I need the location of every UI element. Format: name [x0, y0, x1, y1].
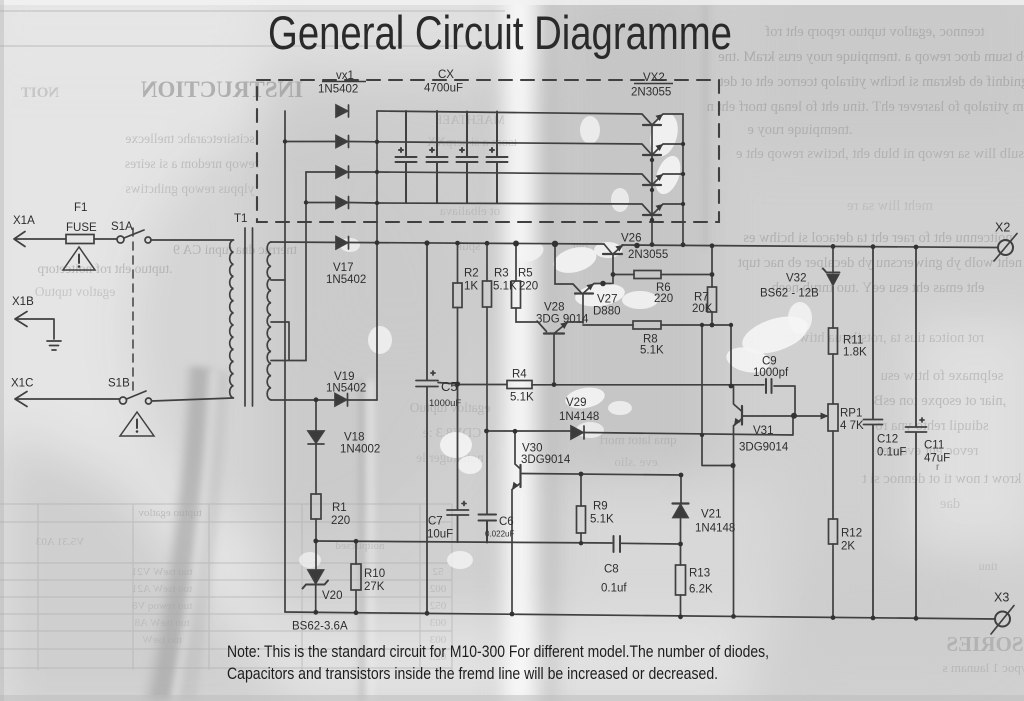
svg-text:5.1K: 5.1K: [493, 281, 517, 293]
svg-text:vx1: vx1: [336, 70, 354, 82]
svg-text:3DG9014: 3DG9014: [521, 454, 571, 466]
svg-text:BS62-3.6A: BS62-3.6A: [292, 621, 348, 633]
svg-text:1000pf: 1000pf: [753, 367, 789, 379]
svg-text:F1: F1: [74, 202, 87, 214]
svg-text:X1B: X1B: [12, 296, 34, 308]
svg-text:General Circuit Diagramme: General Circuit Diagramme: [268, 7, 732, 60]
svg-text:1N4002: 1N4002: [340, 444, 380, 456]
svg-text:V21: V21: [701, 509, 721, 521]
svg-text:C12: C12: [877, 434, 898, 446]
svg-text:V28: V28: [544, 302, 564, 314]
svg-text:R3: R3: [494, 268, 509, 280]
svg-text:tuo tseW: tuo tseW: [142, 634, 182, 646]
svg-text:ot elbaliava: ot elbaliava: [440, 203, 501, 218]
svg-text:2N3055: 2N3055: [631, 87, 671, 99]
svg-text:tinu: tinu: [979, 559, 998, 573]
svg-text:selpmaxe fo htiw esu: selpmaxe fo htiw esu: [881, 368, 1004, 384]
svg-text:4700uF: 4700uF: [424, 83, 463, 95]
svg-text:R9: R9: [593, 501, 608, 513]
svg-text:C8: C8: [604, 564, 619, 576]
svg-text:220: 220: [654, 293, 673, 305]
svg-text:scitsiretcarahc tnellecxe: scitsiretcarahc tnellecxe: [125, 131, 254, 146]
svg-text:052: 052: [430, 600, 447, 612]
svg-text:3DG 9014: 3DG 9014: [536, 314, 589, 326]
svg-text:5.1K: 5.1K: [640, 345, 664, 357]
svg-text:R13: R13: [689, 568, 710, 580]
svg-text:0.1uf: 0.1uf: [601, 583, 627, 595]
svg-text:D880: D880: [593, 306, 621, 318]
svg-text:1K: 1K: [464, 281, 478, 293]
svg-text:.tuptuo eht rof noitcetorp: .tuptuo eht rof noitcetorp: [37, 261, 172, 276]
svg-text:yam ytiralop fo lasrever ehT .: yam ytiralop fo lasrever ehT .tinu eht f…: [706, 99, 1024, 115]
svg-text:C5: C5: [441, 379, 458, 394]
svg-text:1N5402: 1N5402: [326, 274, 366, 286]
svg-text:S1B: S1B: [108, 378, 130, 390]
svg-text:eve .slio: eve .slio: [614, 454, 657, 469]
svg-text:sdiuqil rehto yna ro: sdiuqil rehto yna ro: [875, 418, 988, 434]
svg-text:ylppus rewop gnihctiws: ylppus rewop gnihctiws: [126, 181, 255, 196]
svg-text:,niar ot esopxe ton esB: ,niar ot esopxe ton esB: [874, 393, 1007, 409]
svg-text:rot noitca tius ta ,rotsilot: rot noitca tius ta ,rotsilotua htiw tu: [784, 330, 984, 346]
svg-text:5.1K: 5.1K: [510, 392, 534, 404]
svg-text:Capacitors and transistors ins: Capacitors and transistors inside the fr…: [227, 665, 718, 683]
svg-text:R5: R5: [518, 268, 533, 280]
svg-text:tcennoc ,egatlov tuptuo repor: tcennoc ,egatlov tuptuo reporp eht rof: [765, 24, 984, 40]
svg-text:S1A: S1A: [111, 221, 133, 233]
svg-text:5.1K: 5.1K: [590, 514, 614, 526]
svg-text:neht wolb yb gniwercsnu yb d: neht wolb yb gniwercsnu yb decalper eb n…: [738, 255, 1022, 271]
svg-text:RP1: RP1: [840, 408, 862, 420]
svg-text:FUSE: FUSE: [66, 222, 97, 234]
svg-text:6.2K: 6.2K: [689, 584, 713, 596]
svg-text:gnidnif eb dekram si hcihw yti: gnidnif eb dekram si hcihw ytiralop tcer…: [720, 74, 1024, 90]
svg-text:NOIT: NOIT: [21, 85, 59, 101]
svg-text:SORIES: SORIES: [946, 632, 1023, 656]
svg-text:ypoc 1 launam s: ypoc 1 launam s: [943, 660, 1024, 675]
svg-text:meht lliw sa re: meht lliw sa re: [847, 198, 933, 214]
svg-text:sulb lliw sa rewop ni blub eht: sulb lliw sa rewop ni blub eht ,hctiws r…: [736, 146, 1024, 162]
svg-text:003: 003: [429, 617, 446, 629]
svg-text:X1C: X1C: [11, 378, 33, 390]
svg-text:C7: C7: [428, 516, 443, 528]
svg-text:1N5402: 1N5402: [318, 84, 358, 96]
svg-text:X3: X3: [994, 591, 1009, 605]
svg-text:rewop nredom a si seires: rewop nredom a si seires: [125, 156, 259, 171]
svg-text:V27: V27: [597, 294, 617, 306]
svg-text:52: 52: [433, 566, 444, 578]
svg-text:spuk: spuk: [455, 238, 480, 253]
svg-text:220: 220: [519, 281, 538, 293]
svg-text:V20: V20: [322, 590, 342, 602]
svg-text:1N4148: 1N4148: [559, 411, 599, 423]
svg-text:tuo rewoq V8: tuo rewoq V8: [131, 600, 192, 612]
svg-text:tnerruc dna tupni CA 9: tnerruc dna tupni CA 9: [173, 242, 297, 257]
svg-text:R12: R12: [841, 528, 862, 540]
svg-text:C9: C9: [762, 356, 777, 368]
svg-text:.tnempiuqe ruoy e: .tnempiuqe ruoy e: [747, 122, 852, 138]
svg-text:2N3055: 2N3055: [628, 249, 668, 261]
svg-text:R2: R2: [464, 268, 479, 280]
svg-text:0.1uF: 0.1uF: [877, 447, 906, 459]
svg-text:tuptuo egatlov: tuptuo egatlov: [138, 507, 202, 519]
svg-text:20K: 20K: [692, 303, 713, 315]
svg-text:002: 002: [430, 583, 447, 595]
svg-text:0.022uF: 0.022uF: [485, 530, 514, 539]
svg-text:C11: C11: [924, 440, 944, 452]
svg-text:egatlov tuptuO: egatlov tuptuO: [34, 284, 115, 299]
svg-text:Note: This is the standard cir: Note: This is the standard circuit for M…: [227, 643, 769, 661]
svg-text:V5.31 A03: V5.31 A03: [35, 536, 84, 548]
svg-text:1.8K: 1.8K: [843, 347, 867, 359]
svg-text:V19: V19: [334, 371, 354, 383]
svg-text:V26: V26: [621, 233, 641, 245]
svg-text:CX: CX: [438, 69, 454, 81]
svg-text:V30: V30: [522, 443, 542, 455]
svg-text:MAEHTAEF: MAEHTAEF: [435, 112, 505, 127]
svg-text:R10: R10: [364, 568, 385, 580]
svg-text:2K: 2K: [841, 541, 855, 553]
svg-text:X2: X2: [995, 221, 1010, 235]
svg-text:tuo tseW A21: tuo tseW A21: [132, 583, 192, 595]
svg-text:R4: R4: [512, 369, 527, 381]
svg-text:R7: R7: [694, 292, 709, 304]
svg-text:noitcennu eht fo raer eht ta d: noitcennu eht fo raer eht ta detacol si …: [743, 230, 1013, 246]
svg-text:V31: V31: [753, 425, 773, 437]
svg-text:3DG9014: 3DG9014: [739, 442, 789, 454]
svg-text:C6: C6: [499, 516, 514, 528]
svg-text:dae: dae: [940, 496, 960, 512]
svg-text:BS62 - 12B: BS62 - 12B: [760, 288, 819, 300]
svg-text:VX2: VX2: [643, 72, 665, 84]
svg-text:V29: V29: [566, 397, 586, 409]
svg-text:T1: T1: [234, 213, 247, 225]
svg-text:krow t now ti ot dennoc si t: krow t now ti ot dennoc si t: [862, 471, 1021, 487]
svg-text:27K: 27K: [364, 581, 385, 593]
svg-text:R11: R11: [843, 335, 863, 347]
svg-text:R1: R1: [332, 502, 347, 514]
svg-text:V17: V17: [333, 262, 353, 274]
svg-text:1000uF: 1000uF: [429, 398, 461, 409]
svg-text:tuo tseW A8: tuo tseW A8: [134, 617, 189, 629]
svg-text:4 7K: 4 7K: [840, 420, 864, 432]
svg-text:eb tsum droc rewop a .tnempiu: eb tsum droc rewop a .tnempiuqe ruoy eru…: [718, 49, 1024, 65]
svg-text:1N4148: 1N4148: [695, 523, 735, 535]
svg-text:10uF: 10uF: [427, 529, 453, 541]
svg-text:V32: V32: [786, 273, 806, 285]
svg-text:V18: V18: [344, 432, 364, 444]
svg-text:tuo tseW V21: tuo tseW V21: [132, 566, 193, 578]
svg-text:X1A: X1A: [13, 215, 35, 227]
svg-text:220: 220: [331, 515, 350, 527]
svg-text:1N5402: 1N5402: [326, 383, 366, 395]
